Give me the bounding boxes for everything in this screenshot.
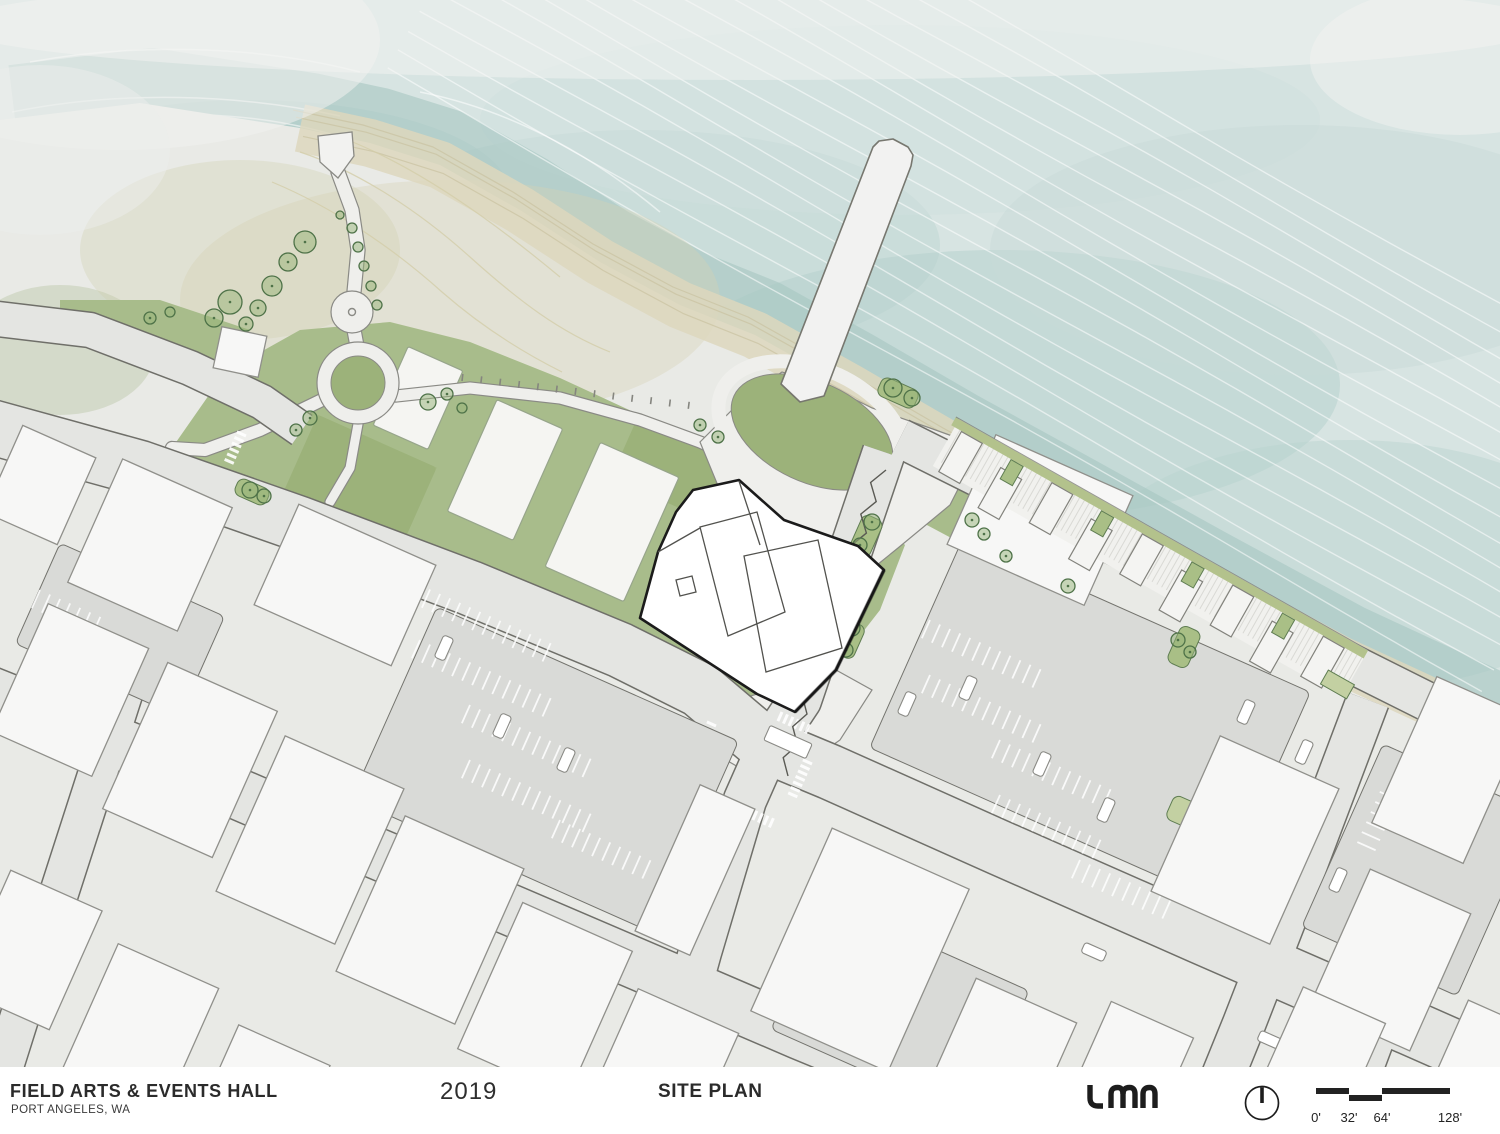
scale-bar-segment bbox=[1316, 1088, 1349, 1094]
project-year: 2019 bbox=[440, 1078, 497, 1106]
scale-bar: 0'32'64'128' bbox=[1306, 1086, 1466, 1128]
site-plan-svg bbox=[0, 0, 1500, 1067]
lmn-logo bbox=[1086, 1084, 1164, 1112]
scale-label: 64' bbox=[1374, 1110, 1391, 1125]
sheet-title: SITE PLAN bbox=[658, 1081, 763, 1103]
scale-label: 0' bbox=[1311, 1110, 1321, 1125]
project-location: PORT ANGELES, WA bbox=[11, 1104, 130, 1116]
site-plan-sheet: FIELD ARTS & EVENTS HALL PORT ANGELES, W… bbox=[0, 0, 1500, 1134]
title-block: FIELD ARTS & EVENTS HALL PORT ANGELES, W… bbox=[0, 1067, 1500, 1134]
scale-bar-segment bbox=[1349, 1095, 1382, 1101]
scale-label: 128' bbox=[1438, 1110, 1462, 1125]
scale-label: 32' bbox=[1341, 1110, 1358, 1125]
project-title: FIELD ARTS & EVENTS HALL bbox=[10, 1081, 278, 1102]
north-arrow-icon bbox=[1243, 1084, 1281, 1122]
scale-bar-segment bbox=[1382, 1088, 1450, 1094]
